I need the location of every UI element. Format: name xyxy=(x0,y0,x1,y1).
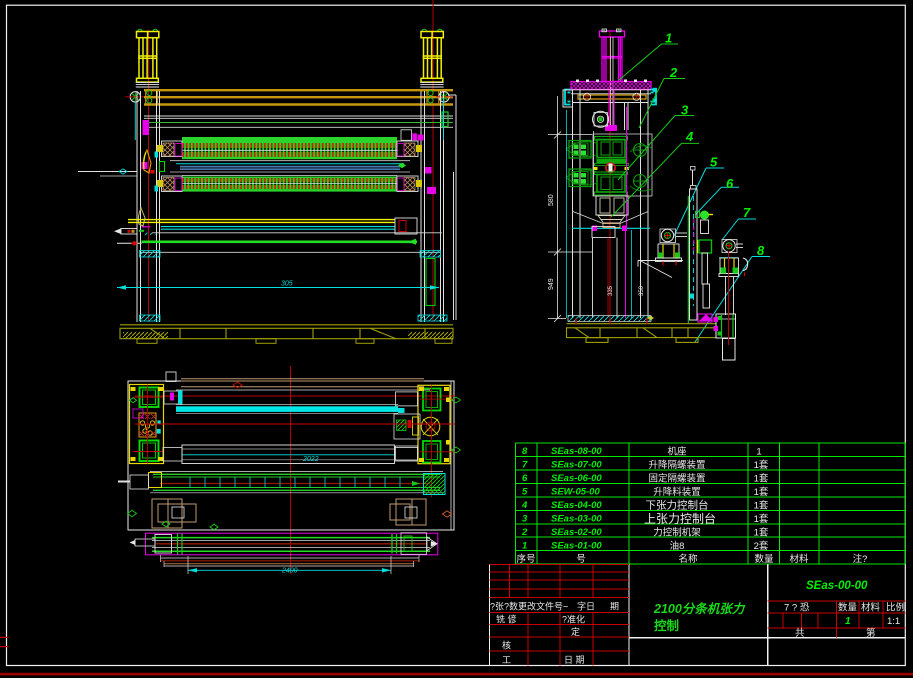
svg-text:字日: 字日 xyxy=(577,601,595,612)
svg-text:350: 350 xyxy=(639,285,645,296)
svg-text:1套: 1套 xyxy=(754,513,769,525)
svg-text:2套: 2套 xyxy=(754,540,769,552)
svg-text:序号: 序号 xyxy=(516,553,535,565)
svg-text:1套: 1套 xyxy=(754,486,769,498)
svg-text:1: 1 xyxy=(665,31,672,46)
svg-text:SEW-05-00: SEW-05-00 xyxy=(551,487,600,498)
svg-text:4: 4 xyxy=(521,500,528,511)
svg-text:SEas-01-00: SEas-01-00 xyxy=(551,541,602,552)
svg-text:6: 6 xyxy=(522,473,528,484)
svg-text:?张?数更改文件号~: ?张?数更改文件号~ xyxy=(490,601,568,612)
svg-text:1: 1 xyxy=(756,447,761,458)
svg-text:油8: 油8 xyxy=(670,540,685,552)
svg-text:机座: 机座 xyxy=(667,446,687,458)
svg-text:工: 工 xyxy=(502,655,511,665)
svg-text:SEas-02-00: SEas-02-00 xyxy=(551,527,602,538)
svg-text:1: 1 xyxy=(845,616,851,627)
svg-text:SEas-03-00: SEas-03-00 xyxy=(551,514,602,525)
svg-text:升降料装置: 升降料装置 xyxy=(653,486,701,498)
svg-text:2400: 2400 xyxy=(281,568,298,575)
svg-text:7: 7 xyxy=(522,460,528,471)
svg-text:SEas-06-00: SEas-06-00 xyxy=(551,473,602,484)
svg-text:7 ? 恐: 7 ? 恐 xyxy=(784,603,810,614)
svg-text:580: 580 xyxy=(548,194,555,206)
svg-text:SEas-07-00: SEas-07-00 xyxy=(551,460,602,471)
svg-text:8: 8 xyxy=(522,446,528,457)
svg-text:上张力控制台: 上张力控制台 xyxy=(644,511,716,526)
svg-text:2022: 2022 xyxy=(302,456,319,463)
svg-text:数量: 数量 xyxy=(838,602,858,614)
svg-text:核: 核 xyxy=(502,640,511,651)
svg-text:名称: 名称 xyxy=(678,553,698,565)
svg-text:力控制机架: 力控制机架 xyxy=(653,527,701,539)
svg-text:1:1: 1:1 xyxy=(887,616,900,627)
svg-text:1: 1 xyxy=(522,541,527,552)
svg-text:比例: 比例 xyxy=(886,602,905,614)
svg-text:7: 7 xyxy=(743,205,751,220)
svg-text:升降隔螺装置: 升降隔螺装置 xyxy=(648,459,705,471)
svg-text:下张力控制台: 下张力控制台 xyxy=(646,499,709,512)
svg-text:5: 5 xyxy=(522,487,528,498)
svg-text:3: 3 xyxy=(522,514,528,525)
svg-text:注?: 注? xyxy=(853,553,868,565)
svg-text:号: 号 xyxy=(576,554,586,565)
svg-text:1套: 1套 xyxy=(754,473,769,485)
svg-text:305: 305 xyxy=(281,281,293,288)
svg-text:5: 5 xyxy=(710,155,718,170)
svg-text:材料: 材料 xyxy=(789,553,809,565)
svg-text:1套: 1套 xyxy=(754,527,769,539)
svg-text:期: 期 xyxy=(610,602,619,612)
svg-text:材料: 材料 xyxy=(861,602,881,614)
svg-text:949: 949 xyxy=(548,278,555,290)
svg-text:1套: 1套 xyxy=(754,500,769,512)
svg-text:2100分条机张力: 2100分条机张力 xyxy=(653,602,746,616)
svg-text:SEas-04-00: SEas-04-00 xyxy=(551,500,602,511)
svg-text:固定隔螺装置: 固定隔螺装置 xyxy=(648,473,705,485)
svg-text:2: 2 xyxy=(521,527,528,538)
svg-text:1套: 1套 xyxy=(754,459,769,471)
svg-text:SEas-00-00: SEas-00-00 xyxy=(806,580,868,592)
svg-text:4: 4 xyxy=(685,129,694,144)
svg-text:控制: 控制 xyxy=(654,618,679,633)
svg-text:铣 偐: 铣 偐 xyxy=(496,614,517,625)
svg-text:第: 第 xyxy=(866,627,876,639)
svg-text:2: 2 xyxy=(669,65,678,80)
svg-text:日 期: 日 期 xyxy=(564,655,585,665)
svg-text:?准化: ?准化 xyxy=(562,614,585,625)
svg-text:8: 8 xyxy=(757,243,765,258)
svg-text:6: 6 xyxy=(726,176,734,191)
svg-text:SEas-08-00: SEas-08-00 xyxy=(551,446,602,457)
svg-text:3: 3 xyxy=(681,103,689,118)
svg-text:定: 定 xyxy=(571,626,580,637)
svg-text:共: 共 xyxy=(795,628,805,639)
svg-text:数量: 数量 xyxy=(754,553,774,565)
svg-text:335: 335 xyxy=(608,285,614,296)
